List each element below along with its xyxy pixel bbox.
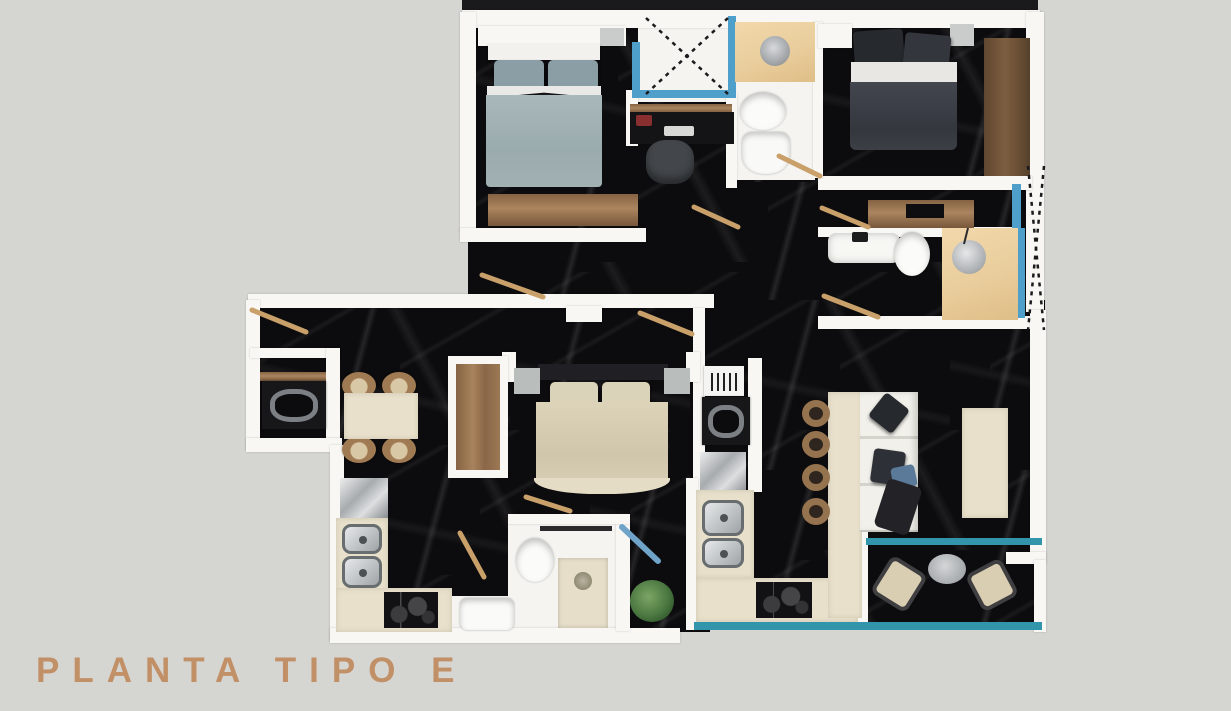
bedroom1-nightstand	[600, 28, 624, 46]
laundry-shelf	[260, 372, 326, 381]
washing-machine-right	[702, 397, 750, 445]
bed1-pillow-left	[494, 60, 544, 90]
bed3-headboard	[538, 364, 668, 380]
bed3-blanket	[536, 402, 668, 482]
cooktop-right	[756, 582, 812, 618]
wall-laundry-bottom	[246, 438, 342, 452]
bar-stool-1	[802, 400, 830, 427]
bed1-blanket	[486, 95, 602, 187]
bedroom3-wardrobe	[456, 364, 500, 470]
cooktop-left	[384, 592, 438, 628]
plant	[630, 580, 674, 622]
bar-stool-3	[802, 464, 830, 491]
bathroom-bottom-toilet	[516, 538, 554, 582]
office-chair	[646, 140, 694, 184]
washing-machine-left	[262, 381, 326, 429]
bedroom2-nightstand-right	[950, 24, 974, 46]
plan-title: PLANTA TIPO E	[36, 651, 468, 691]
wall-laundry-right	[326, 348, 340, 444]
shower-drain	[574, 572, 592, 590]
balcony-table	[928, 554, 966, 584]
wall-bedroom1-bottom	[460, 228, 646, 242]
bathtub-faucet	[852, 232, 868, 242]
floor-plan-page: { "title": { "label": "PLANTA TIPO E" },…	[0, 0, 1231, 711]
bar-stool-2	[802, 431, 830, 458]
shower-floor	[558, 558, 608, 628]
bottom-glass-rail	[694, 622, 1042, 630]
coffee-table	[962, 408, 1008, 518]
refrigerator-left	[340, 478, 388, 520]
glass-patio-left	[632, 42, 640, 98]
bedroom3-nightstand-left	[514, 368, 540, 394]
kitchen-right-sink-1	[702, 500, 744, 536]
wall-left-wing-west	[246, 300, 260, 450]
glass-patio-bottom	[640, 90, 734, 98]
oven	[704, 366, 744, 396]
bed1-headboard	[488, 44, 600, 60]
bathroom-bottom-sink	[460, 598, 514, 630]
door-leaf-corridor	[566, 306, 602, 322]
bar-stool-4	[802, 498, 830, 525]
bed2-blanket	[850, 82, 957, 150]
bathroom-top-toilet	[740, 92, 786, 130]
bedroom1-dresser	[488, 194, 638, 226]
glass-window-right	[1012, 184, 1021, 228]
bathroom-right-sink	[952, 240, 986, 274]
tv	[906, 204, 944, 218]
wall-bathroom-bottom-right	[616, 517, 630, 631]
kitchen-left-sink-1	[342, 524, 382, 554]
dining-table	[344, 393, 418, 439]
kitchen-right-sink-2	[702, 538, 744, 568]
kitchen-left-sink-2	[342, 556, 382, 588]
desk-keyboard	[664, 126, 694, 136]
wall-bathroom-bottom-top	[508, 514, 630, 524]
bathroom-right-toilet	[894, 232, 930, 276]
towel-rail	[540, 526, 612, 531]
wall-corridor	[248, 294, 714, 308]
bathroom-top-sink	[760, 36, 790, 66]
wall-left-top-block	[460, 12, 476, 232]
desk-items	[636, 115, 652, 126]
dining-chair-4	[382, 436, 416, 463]
kitchen-island	[828, 392, 862, 618]
bathroom-right-vanity	[942, 228, 1018, 320]
bathroom-top-pedestal-sink	[742, 132, 790, 174]
bedroom2-wardrobe	[984, 38, 1030, 176]
bedroom3-nightstand-right	[664, 368, 690, 394]
wall-kitchen-column-back	[748, 358, 762, 492]
bedroom2-nightstand-left	[818, 24, 852, 48]
balcony-glass-rail	[866, 538, 1042, 545]
wall-bedroom2-bottom	[818, 176, 1032, 190]
wall-right-living	[1030, 310, 1046, 560]
bed1-pillow-right	[548, 60, 598, 90]
dining-chair-3	[342, 436, 376, 463]
